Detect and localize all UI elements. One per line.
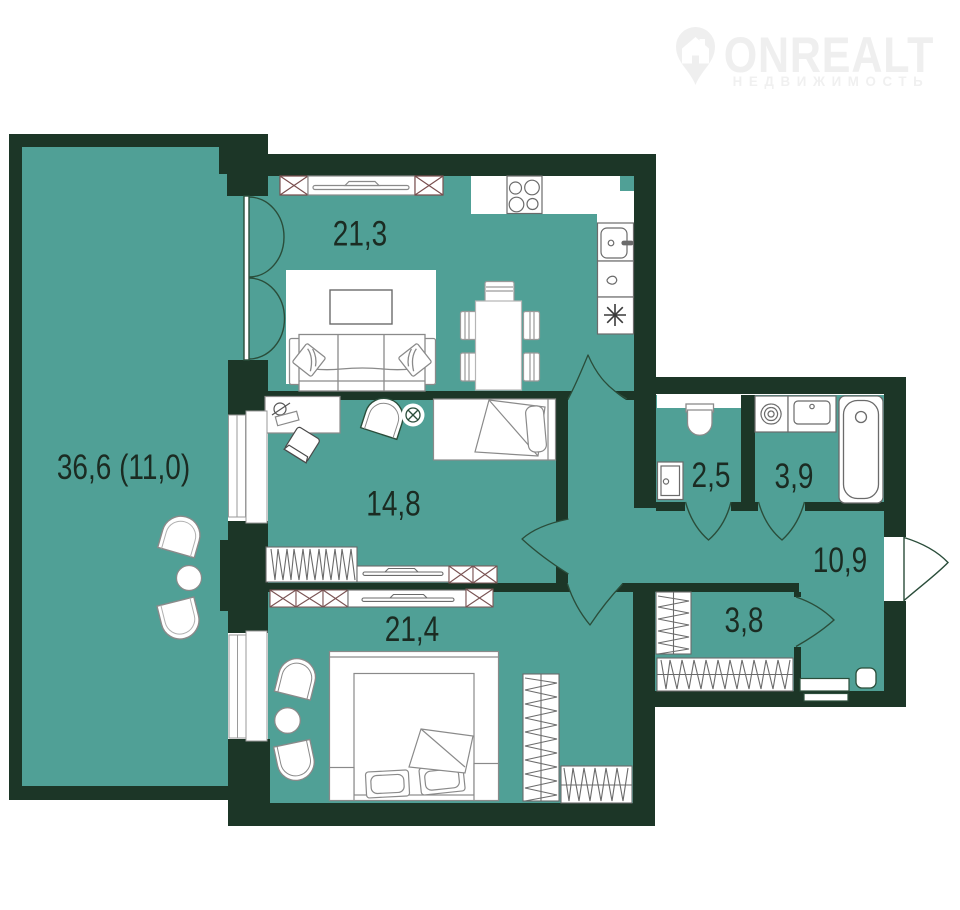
svg-text:3,8: 3,8 [725,600,764,640]
svg-text:3,9: 3,9 [775,456,814,496]
svg-text:НЕДВИЖИМОСТЬ: НЕДВИЖИМОСТЬ [733,74,930,89]
svg-text:2,5: 2,5 [692,455,731,495]
svg-text:21,4: 21,4 [385,609,439,649]
svg-text:36,6 (11,0): 36,6 (11,0) [57,447,190,487]
svg-text:10,9: 10,9 [813,540,867,580]
svg-text:21,3: 21,3 [333,213,387,253]
svg-text:14,8: 14,8 [366,483,420,523]
